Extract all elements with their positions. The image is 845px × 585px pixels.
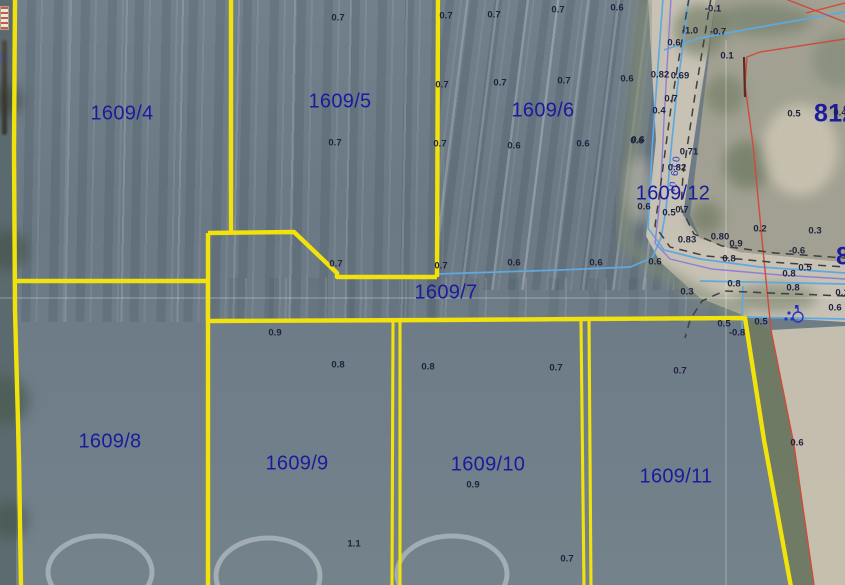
tree-shadow (2, 40, 7, 135)
map-edge-marker (0, 6, 9, 30)
well-symbol (784, 305, 803, 322)
gis-map-viewport[interactable]: 1609/41609/51609/61609/121609/71609/8160… (0, 0, 845, 585)
cadastral-linework (0, 0, 845, 585)
